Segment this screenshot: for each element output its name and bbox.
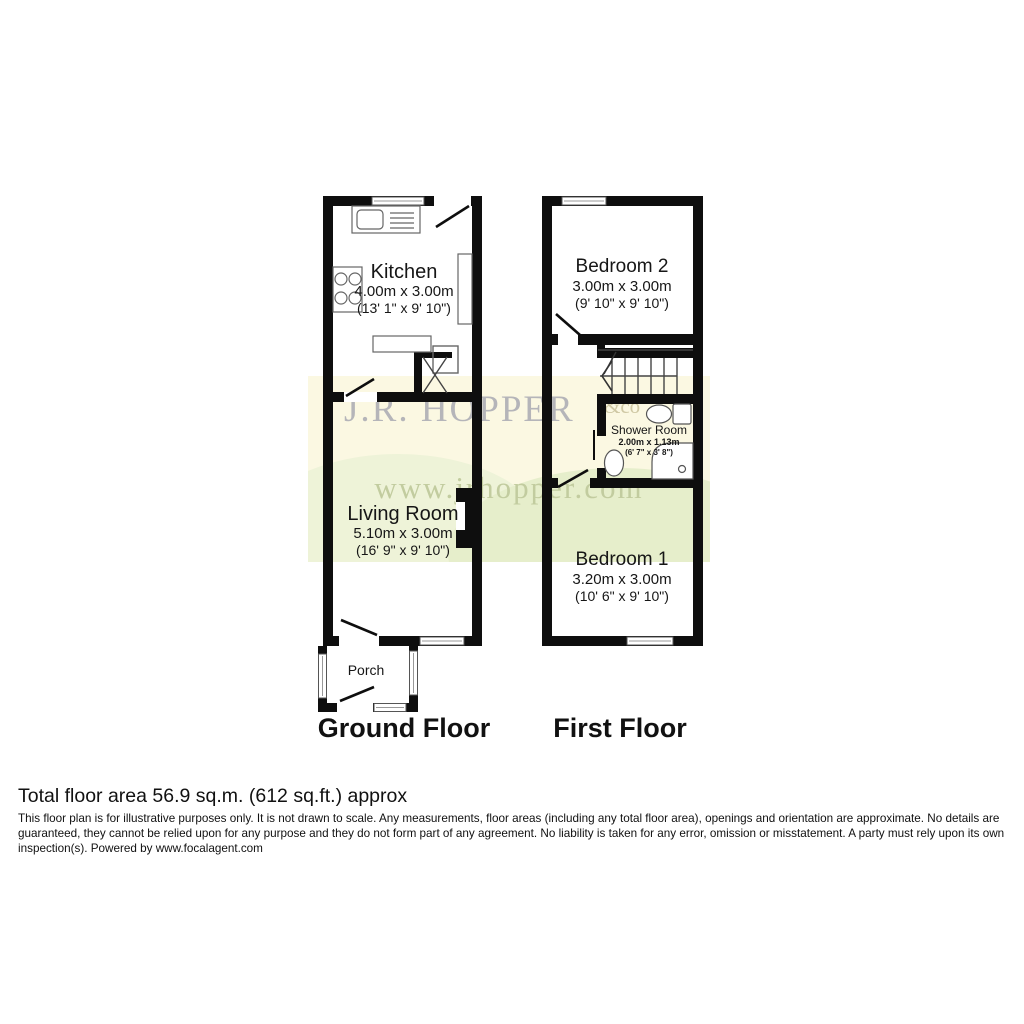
toilet-bowl — [647, 405, 672, 423]
shower-drain — [679, 466, 686, 473]
kitchen-door — [436, 206, 469, 227]
total-floor-area-text: Total floor area 56.9 sq.m. (612 sq.ft.)… — [18, 785, 407, 808]
room-name: Bedroom 2 — [572, 256, 671, 278]
floorplan-page: J.R. HOPPER &co www.jrhopper.com — [0, 0, 1024, 1024]
shower-room-label: Shower Room 2.00m x 1.13m (6' 7" x 3' 8"… — [611, 424, 687, 458]
room-metric-dims: 2.00m x 1.13m — [611, 437, 687, 448]
toilet-cistern — [673, 404, 691, 424]
floorplan-drawing — [0, 0, 1024, 780]
room-name: Living Room — [347, 503, 458, 525]
first-floor-title: First Floor — [553, 713, 687, 744]
bedroom2-door — [556, 314, 580, 335]
sink-bowl — [357, 210, 383, 229]
room-imperial-dims: (16' 9" x 9' 10") — [347, 542, 458, 558]
room-name: Bedroom 1 — [572, 549, 671, 571]
room-metric-dims: 5.10m x 3.00m — [347, 525, 458, 542]
porch-label: Porch — [348, 662, 385, 678]
room-imperial-dims: (6' 7" x 3' 8") — [611, 448, 687, 458]
living-room-label: Living Room 5.10m x 3.00m (16' 9" x 9' 1… — [347, 503, 458, 558]
porch-front-door — [340, 687, 374, 701]
room-name: Shower Room — [611, 424, 687, 437]
bedroom1-label: Bedroom 1 3.20m x 3.00m (10' 6" x 9' 10"… — [572, 549, 671, 604]
room-name: Kitchen — [354, 261, 453, 283]
kitchen-label: Kitchen 4.00m x 3.00m (13' 1" x 9' 10") — [354, 261, 453, 316]
bedroom1-door — [558, 470, 588, 487]
room-metric-dims: 3.00m x 3.00m — [572, 278, 671, 295]
kitchen-counter-right — [458, 254, 472, 324]
porch-inner-door — [341, 620, 377, 635]
room-imperial-dims: (10' 6" x 9' 10") — [572, 588, 671, 604]
room-metric-dims: 4.00m x 3.00m — [354, 283, 453, 300]
room-metric-dims: 3.20m x 3.00m — [572, 571, 671, 588]
room-imperial-dims: (13' 1" x 9' 10") — [354, 300, 453, 316]
ground-floor-title: Ground Floor — [318, 713, 490, 744]
kitchen-counter-bottom — [373, 336, 431, 352]
bedroom2-label: Bedroom 2 3.00m x 3.00m (9' 10" x 9' 10"… — [572, 256, 671, 311]
room-imperial-dims: (9' 10" x 9' 10") — [572, 295, 671, 311]
disclaimer-text: This floor plan is for illustrative purp… — [18, 812, 1010, 857]
